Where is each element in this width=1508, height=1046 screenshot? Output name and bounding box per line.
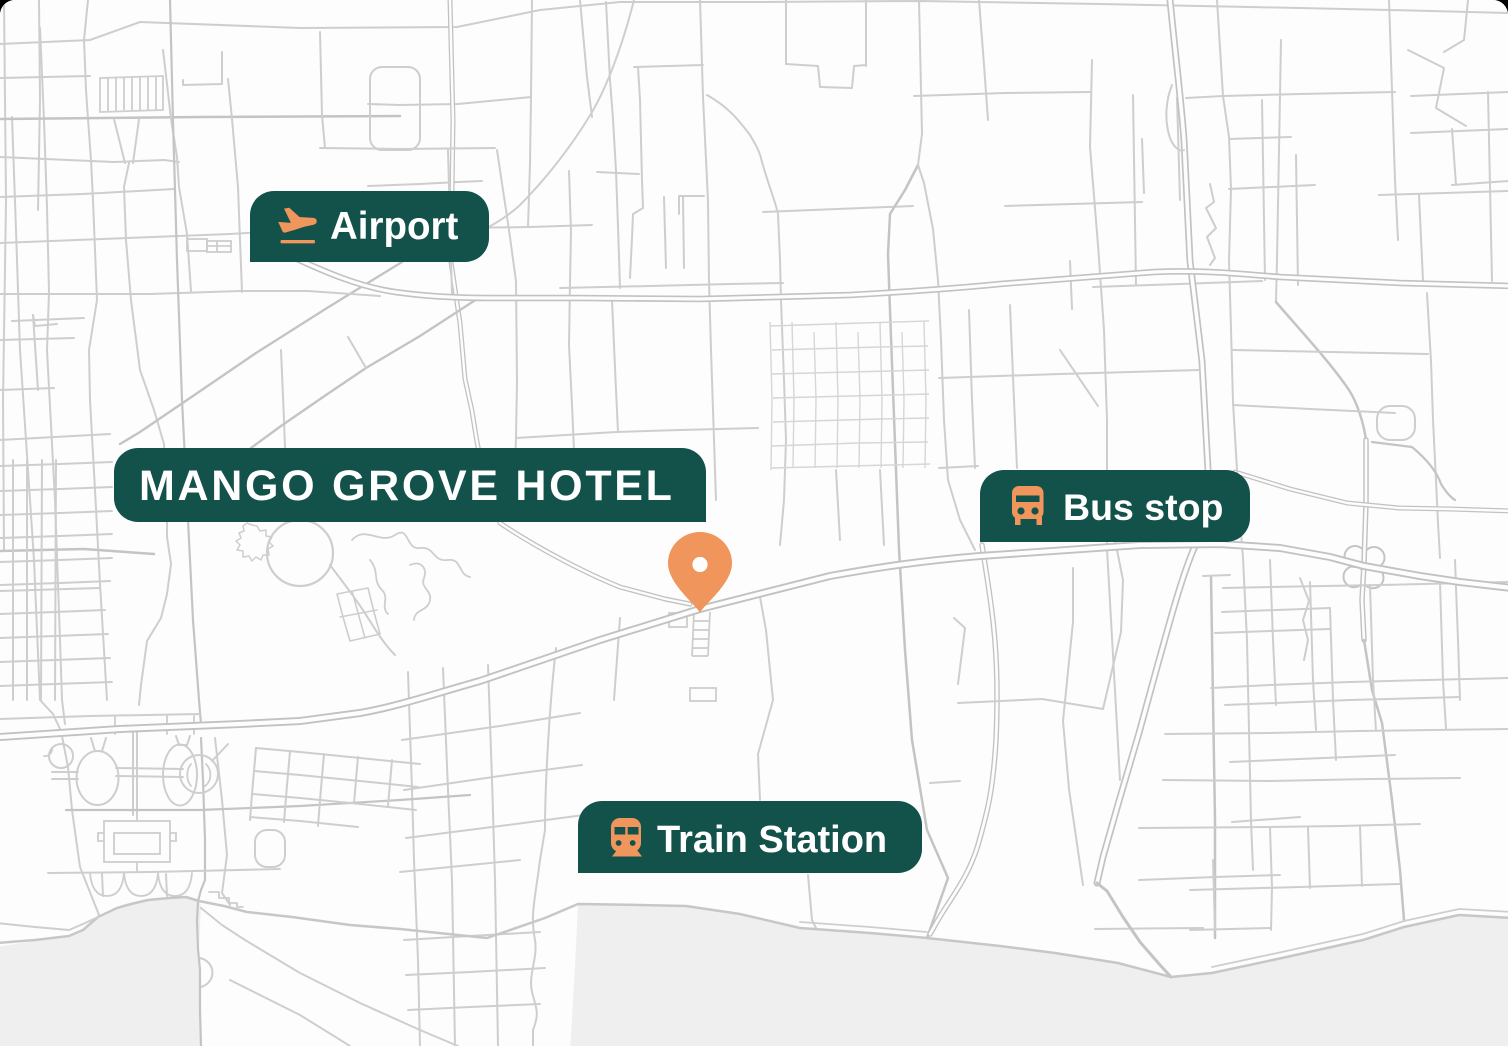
svg-text:MANGO GROVE HOTEL: MANGO GROVE HOTEL <box>139 462 675 510</box>
svg-text:Airport: Airport <box>330 205 459 248</box>
svg-text:Train Station: Train Station <box>657 819 887 861</box>
svg-text:Bus stop: Bus stop <box>1063 486 1223 528</box>
